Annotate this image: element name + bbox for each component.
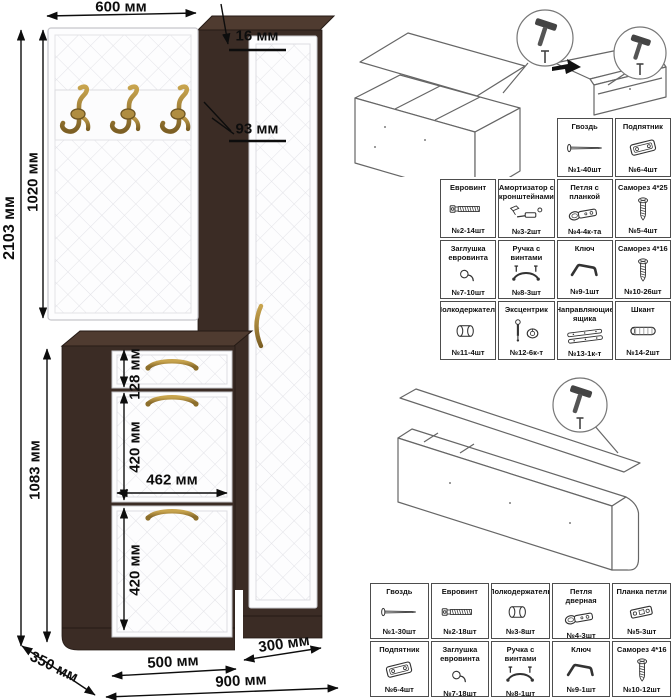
hardware-item-name: Гвоздь [386,587,412,596]
hardware-item-qty: №5-4шт [628,226,657,235]
hardware-cell-hinge: Петля с планкой№4-4к-та [557,179,613,238]
hardware-item-qty: №11-4шт [452,348,485,357]
dowel-icon [619,318,667,344]
hardware-cell-glide: Подпятник№6-4шт [615,118,671,177]
shelf-pin-icon [444,318,492,344]
hammer-icon [503,10,573,93]
handle-icon [502,262,550,288]
dim-total-width-label: 900 мм [215,672,267,690]
cap-icon [435,663,485,689]
screw-icon [617,657,667,683]
hardware-cell-cap: Заглушка евровинта№7-10шт [440,240,496,299]
hardware-cell-cam-lock: Эксцентрик№12-6к-т [498,301,554,360]
hardware-cell-drawer-slides: Направляющие ящика№13-1к-т [557,301,613,360]
hardware-cell-shelf-pin: Полкодержатель№3-8шт [491,583,550,639]
dim-panel-height-label: 1020 мм [26,152,41,212]
dim-total-height-label: 2103 мм [2,196,18,260]
hardware-cell-glide: Подпятник№6-4шт [370,641,429,697]
hardware-item-name: Евровинт [442,587,478,596]
hardware-cell-hex-key: Ключ№9-1шт [557,240,613,299]
hardware-item-name: Шкант [631,305,655,314]
hardware-cell-dowel: Шкант№14-2шт [615,301,671,360]
assembly-sheet: { "drawing": { "dimensions": { "top_widt… [0,0,671,700]
hardware-cell-confirmat: Евровинт№2-18шт [431,583,490,639]
hardware-cell-hex-key: Ключ№9-1шт [552,641,611,697]
screw-icon [619,257,667,283]
hardware-item-qty: №10-26шт [624,287,661,296]
cap-icon [444,262,492,288]
hardware-item-qty: №13-1к-т [568,349,601,358]
dim-drawer-height-label: 128 мм [128,348,143,399]
nail-icon [374,599,424,625]
hardware-table-top: Гвоздь№1-40штПодпятник№6-4штЕвровинт№2-1… [440,118,671,360]
glide-icon [374,657,424,683]
hardware-item-qty: №8-3шт [512,288,541,297]
dim-flap1-height-label: 420 мм [128,421,143,472]
hardware-item-qty: №2-14шт [451,226,484,235]
hardware-cell-confirmat: Евровинт№2-14шт [440,179,496,238]
hardware-item-qty: №7-18шт [443,689,476,697]
hardware-cell-hinge-plate: Планка петли№5-3шт [612,583,671,639]
assembly-step-bottom [340,365,671,580]
hardware-item-qty: №8-1шт [506,689,535,697]
hardware-item-qty: №14-2шт [626,348,659,357]
cam-lock-icon [502,318,550,344]
hinge-icon [556,605,606,631]
confirmat-icon [435,599,485,625]
shelf-pin-icon [495,599,545,625]
dim-cabinet-width-label: 500 мм [147,653,199,671]
dim-flap-width-label: 462 мм [146,473,197,488]
nail-icon [561,135,609,161]
hardware-item-qty: №5-3шт [627,627,656,636]
hardware-cell-screw: Саморез 4*25№5-4шт [615,179,671,238]
dim-top-width-label: 600 мм [95,0,146,15]
hardware-item-name: Ручка с винтами [500,244,552,262]
hardware-item-name: Заглушка евровинта [442,244,494,262]
hardware-item-qty: №4-4к-та [568,227,601,236]
hardware-item-name: Направляющие ящика [557,305,613,323]
screw-icon [619,196,667,222]
hardware-item-name: Эксцентрик [505,305,548,314]
hardware-cell-cap: Заглушка евровинта№7-18шт [431,641,490,697]
hardware-item-qty: №1-40шт [568,165,601,174]
hardware-item-name: Гвоздь [572,122,598,131]
hardware-item-qty: №10-12шт [623,685,660,694]
dim-panel-thickness-label: 16 мм [235,29,278,44]
hardware-item-qty: №6-4шт [628,165,657,174]
hardware-item-name: Петля дверная [554,587,609,605]
shoe-cabinet [62,331,252,652]
hardware-item-name: Ручка с винтами [493,645,548,663]
drawer-slides-icon [561,323,609,349]
hardware-item-name: Подпятник [379,645,419,654]
hardware-item-qty: №3-8шт [506,627,535,636]
hardware-cell-screw: Саморез 4*16№10-12шт [612,641,671,697]
hardware-cell-handle: Ручка с винтами№8-1шт [491,641,550,697]
hardware-cell-hinge: Петля дверная№4-3шт [552,583,611,639]
hardware-item-name: Ключ [571,645,591,654]
hardware-item-qty: №2-18шт [443,627,476,636]
furniture-drawing [0,0,345,700]
hardware-cell-shelf-pin: Полкодержатель№11-4шт [440,301,496,360]
hinge-plate-icon [617,599,667,625]
hardware-item-name: Полкодержатель [491,587,550,596]
hardware-item-qty: №4-3шт [567,631,596,639]
dim-side-depth-label: 93 мм [235,122,278,137]
hinge-icon [561,201,609,227]
confirmat-icon [444,196,492,222]
hex-key-icon [556,657,606,683]
hardware-item-qty: №6-4шт [385,685,414,694]
glide-icon [619,135,667,161]
hardware-item-name: Петля с планкой [559,183,611,201]
hardware-item-name: Евровинт [450,183,486,192]
hardware-item-name: Ключ [575,244,595,253]
hardware-item-name: Подпятник [623,122,663,131]
hardware-item-name: Амортизатор с кронштейнами [499,183,554,201]
hardware-cell-nail: Гвоздь№1-40шт [557,118,613,177]
handle-icon [495,663,545,689]
hardware-cell-handle: Ручка с винтами№8-3шт [498,240,554,299]
hardware-item-qty: №12-6к-т [510,348,543,357]
hardware-item-qty: №1-30шт [383,627,416,636]
wall-panel [48,28,198,320]
hardware-cell-screw: Саморез 4*16№10-26шт [615,240,671,299]
hardware-item-name: Саморез 4*16 [618,244,668,253]
dim-cabinet-height-label: 1083 мм [28,440,43,500]
hardware-table-bottom: Гвоздь№1-30штЕвровинт№2-18штПолкодержате… [370,583,671,697]
hardware-item-name: Саморез 4*16 [617,645,667,654]
gas-lift-icon [502,201,550,227]
dim-flap2-height-label: 420 мм [128,544,143,595]
hardware-item-qty: №7-10шт [451,288,484,297]
hardware-item-qty: №9-1шт [567,685,596,694]
hardware-item-qty: №9-1шт [570,287,599,296]
hardware-item-name: Планка петли [616,587,666,596]
hardware-item-name: Полкодержатель [440,305,496,314]
hardware-cell-gas-lift: Амортизатор с кронштейнами№3-2шт [498,179,554,238]
hardware-item-qty: №3-2шт [512,227,541,236]
hardware-cell-nail: Гвоздь№1-30шт [370,583,429,639]
hardware-item-name: Саморез 4*25 [618,183,668,192]
hardware-item-name: Заглушка евровинта [433,645,488,663]
hex-key-icon [561,257,609,283]
